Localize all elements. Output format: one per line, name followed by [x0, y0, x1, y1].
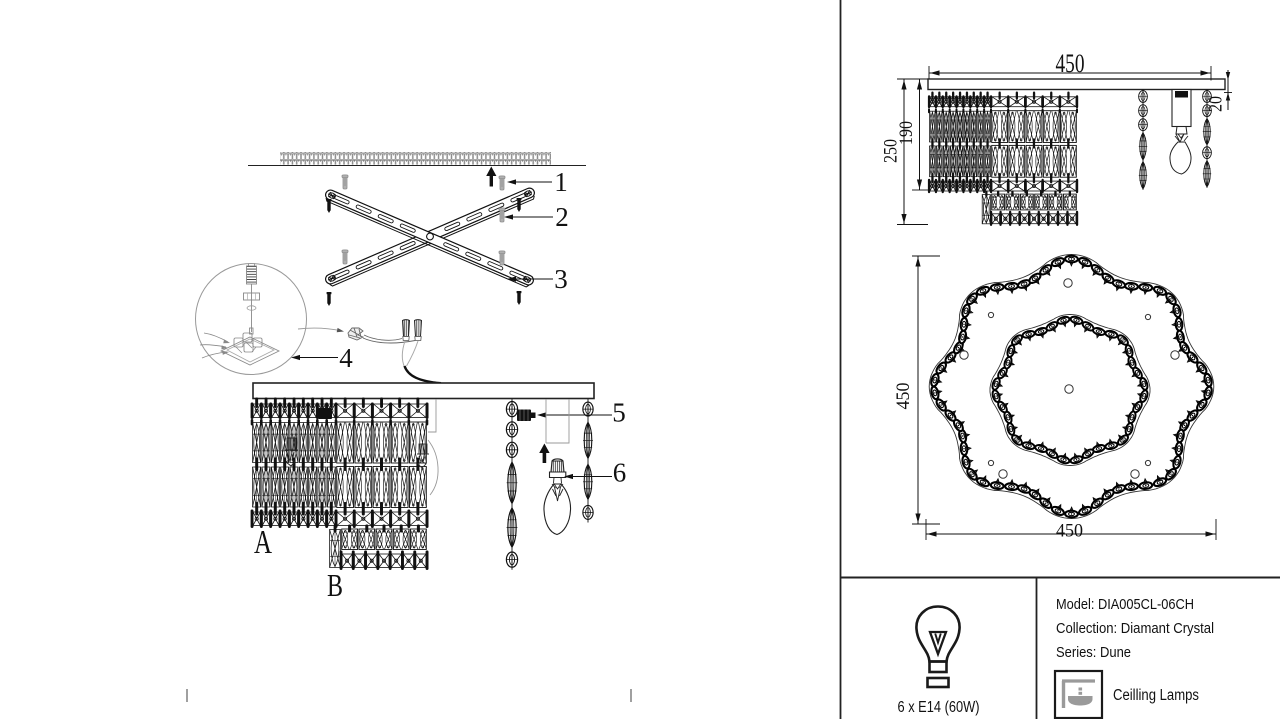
svg-text:Collection: Diamant Crystal: Collection: Diamant Crystal: [1056, 620, 1214, 637]
svg-text:Series: Dune: Series: Dune: [1056, 644, 1131, 661]
svg-text:190: 190: [896, 121, 917, 145]
svg-text:20: 20: [1206, 96, 1227, 112]
svg-text:6: 6: [613, 458, 627, 488]
svg-text:450: 450: [1056, 49, 1085, 78]
svg-text:450: 450: [1056, 521, 1083, 542]
svg-text:B: B: [327, 567, 343, 603]
svg-text:1: 1: [554, 167, 568, 197]
svg-text:2: 2: [555, 202, 569, 232]
svg-text:A: A: [254, 524, 272, 561]
svg-text:6 x E14 (60W): 6 x E14 (60W): [898, 699, 980, 716]
svg-text:Ceilling Lamps: Ceilling Lamps: [1113, 687, 1199, 704]
svg-text:Model: DIA005CL-06CH: Model: DIA005CL-06CH: [1056, 596, 1194, 613]
svg-text:3: 3: [554, 264, 568, 294]
svg-text:5: 5: [612, 398, 626, 428]
svg-text:4: 4: [339, 343, 353, 373]
svg-text:450: 450: [893, 383, 914, 410]
